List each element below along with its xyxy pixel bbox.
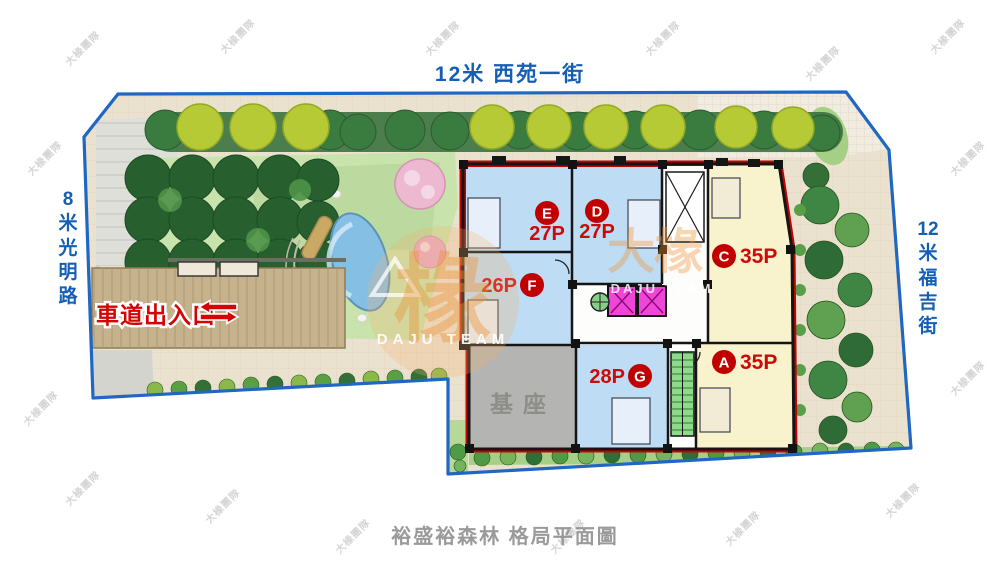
plan-caption: 裕盛裕森林 格局平面圖 <box>330 520 680 549</box>
watermark-team-en-1: DAJU TEAM <box>377 331 510 348</box>
svg-text:28P: 28P <box>589 366 625 388</box>
svg-text:C: C <box>719 249 730 266</box>
watermark-brand: 大椽 DAJU TEAM <box>607 226 713 296</box>
svg-text:F: F <box>527 278 536 295</box>
top-tree-row <box>145 104 843 152</box>
unit-label-A: A 35P <box>712 350 777 374</box>
street-label-left: 8米光明路 <box>50 188 86 310</box>
street-label-right: 12米福吉街 <box>910 218 946 340</box>
base-label: 基座 <box>490 391 556 417</box>
unit-label-C: C 35P <box>712 244 777 268</box>
svg-text:G: G <box>634 369 646 386</box>
watermark-badge: 椽 DAJU TEAM <box>367 226 519 378</box>
svg-text:A: A <box>719 355 730 372</box>
svg-text:27P: 27P <box>529 223 565 245</box>
stairwell <box>671 352 694 436</box>
svg-text:35P: 35P <box>740 245 777 268</box>
cherry-tree-1 <box>395 159 445 209</box>
entrance-box-1 <box>178 262 216 276</box>
svg-text:D: D <box>592 204 603 221</box>
svg-text:E: E <box>542 206 552 223</box>
watermark-team-en-2: DAJU TEAM <box>611 281 714 296</box>
unit-label-G: 28P G <box>589 364 652 388</box>
svg-text:35P: 35P <box>740 351 777 374</box>
street-label-top: 12米 西苑一街 <box>402 58 618 88</box>
site-plan-canvas: 基座 E 27P D 27P C 35P 26P F 28P G A 35P 車… <box>0 0 1000 562</box>
entrance-box-2 <box>220 262 258 276</box>
watermark-brand-cn: 大椽 <box>607 226 703 279</box>
driveway-label: 車道出入口 <box>96 302 216 328</box>
spiral-stair <box>591 293 609 311</box>
